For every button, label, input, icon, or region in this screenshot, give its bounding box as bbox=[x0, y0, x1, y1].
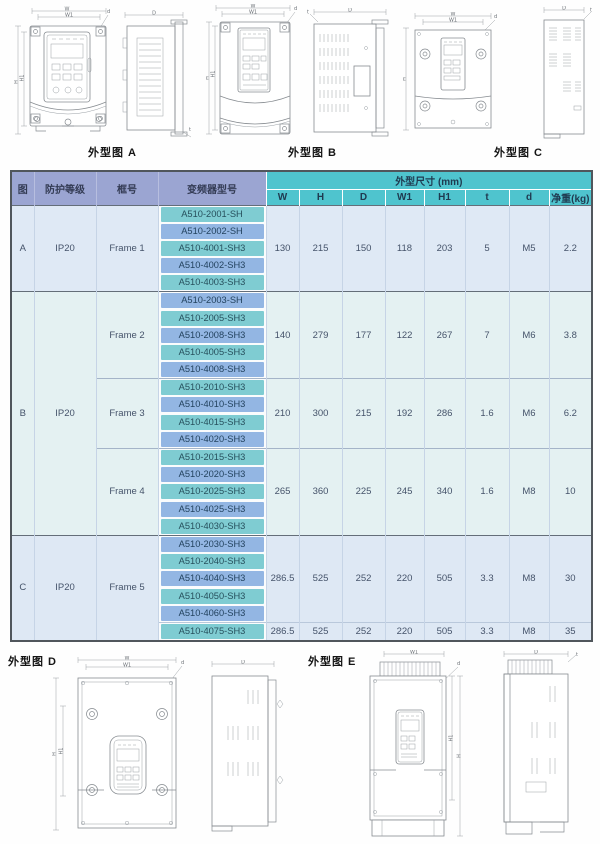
svg-text:H1: H1 bbox=[211, 71, 217, 78]
model-cell: A510-2020-SH3 bbox=[158, 466, 266, 483]
outline-drawing-a-front: W W1 H H1 d bbox=[14, 6, 110, 142]
svg-text:H1: H1 bbox=[449, 735, 455, 742]
svg-text:d: d bbox=[181, 660, 184, 666]
model-cell: A510-4020-SH3 bbox=[158, 431, 266, 449]
dimension-value-cell: 150 bbox=[342, 205, 385, 292]
mounting-plate bbox=[268, 680, 276, 822]
svg-text:d: d bbox=[294, 6, 297, 12]
model-chip: A510-2001-SH bbox=[161, 207, 264, 222]
model-cell: A510-2005-SH3 bbox=[158, 309, 266, 326]
outline-drawing-e-side: D t bbox=[492, 650, 580, 840]
model-cell: A510-4050-SH3 bbox=[158, 587, 266, 604]
heatsink-block bbox=[508, 660, 552, 674]
model-chip: A510-4001-SH3 bbox=[161, 241, 264, 256]
outline-drawing-e-front: W1 d H1 H bbox=[356, 650, 472, 840]
dimension-value-cell: 210 bbox=[266, 379, 299, 449]
outline-drawing-b-front: W W1 H H1 d bbox=[206, 4, 298, 140]
figure-cell: C bbox=[11, 535, 34, 640]
svg-text:D: D bbox=[348, 8, 352, 14]
model-chip: A510-2020-SH3 bbox=[161, 467, 264, 482]
col-header-weight: 净重(kg) bbox=[549, 189, 592, 205]
outline-drawing-d-side: D bbox=[202, 660, 286, 834]
dimension-value-cell: 265 bbox=[266, 448, 299, 535]
svg-text:d: d bbox=[107, 9, 110, 15]
model-chip: A510-2015-SH3 bbox=[161, 450, 264, 465]
svg-text:H: H bbox=[403, 77, 408, 81]
figure-label-a: 外型图 A bbox=[88, 144, 137, 160]
device-body bbox=[127, 26, 175, 130]
dimension-value-cell: 7 bbox=[465, 292, 509, 379]
frame-cell: Frame 4 bbox=[96, 448, 158, 535]
dimension-value-cell: 525 bbox=[299, 535, 342, 622]
dimension-value-cell: M8 bbox=[509, 622, 549, 641]
model-cell: A510-2001-SH bbox=[158, 205, 266, 223]
model-chip: A510-2040-SH3 bbox=[161, 554, 264, 569]
svg-text:t: t bbox=[307, 10, 309, 16]
dimension-value-cell: 140 bbox=[266, 292, 299, 379]
model-cell: A510-4025-SH3 bbox=[158, 500, 266, 517]
heatsink-block bbox=[380, 662, 440, 676]
figure-label-d: 外型图 D bbox=[8, 653, 57, 669]
svg-text:H1: H1 bbox=[59, 748, 65, 755]
model-chip: A510-4025-SH3 bbox=[161, 502, 264, 517]
protection-cell: IP20 bbox=[34, 205, 96, 292]
model-cell: A510-2040-SH3 bbox=[158, 553, 266, 570]
dimension-value-cell: 5 bbox=[465, 205, 509, 292]
model-cell: A510-4040-SH3 bbox=[158, 570, 266, 587]
model-cell: A510-4030-SH3 bbox=[158, 518, 266, 536]
heatsink-fins bbox=[384, 662, 436, 676]
dimension-value-cell: 300 bbox=[299, 379, 342, 449]
frame-cell: Frame 2 bbox=[96, 292, 158, 379]
outline-drawing-b-side: D t bbox=[306, 8, 398, 140]
protection-cell: IP20 bbox=[34, 292, 96, 535]
svg-text:H: H bbox=[52, 752, 58, 756]
dimension-value-cell: 1.6 bbox=[465, 379, 509, 449]
model-cell: A510-4008-SH3 bbox=[158, 361, 266, 379]
dimension-value-cell: 130 bbox=[266, 205, 299, 292]
device-body bbox=[504, 674, 568, 822]
model-chip: A510-2008-SH3 bbox=[161, 328, 264, 343]
feet bbox=[506, 822, 564, 834]
dimension-value-cell: 6.2 bbox=[549, 379, 592, 449]
terminal-cover bbox=[372, 820, 444, 836]
col-header-h: H bbox=[299, 189, 342, 205]
col-header-figure: 图 bbox=[11, 171, 34, 205]
table-row: Frame 4A510-2015-SH32653602252453401.6M8… bbox=[11, 448, 592, 466]
svg-text:W1: W1 bbox=[449, 18, 457, 24]
model-cell: A510-2002-SH bbox=[158, 223, 266, 240]
front-latches bbox=[123, 38, 127, 112]
model-chip: A510-4020-SH3 bbox=[161, 432, 264, 447]
latch-diamonds bbox=[277, 700, 283, 784]
figure-cell: A bbox=[11, 205, 34, 292]
model-cell: A510-4003-SH3 bbox=[158, 274, 266, 292]
col-header-d: D bbox=[342, 189, 385, 205]
dimension-value-cell: 3.3 bbox=[465, 535, 509, 622]
table-row: AIP20Frame 1A510-2001-SH1302151501182035… bbox=[11, 205, 592, 223]
svg-text:t: t bbox=[576, 652, 578, 658]
model-chip: A510-4040-SH3 bbox=[161, 571, 264, 586]
model-chip: A510-2010-SH3 bbox=[161, 380, 264, 395]
svg-text:D: D bbox=[152, 11, 156, 17]
svg-text:D: D bbox=[562, 6, 566, 12]
dimension-value-cell: 2.2 bbox=[549, 205, 592, 292]
dimension-value-cell: 360 bbox=[299, 448, 342, 535]
dimension-value-cell: 286.5 bbox=[266, 535, 299, 622]
figure-label-e: 外型图 E bbox=[308, 653, 356, 669]
dimension-value-cell: 279 bbox=[299, 292, 342, 379]
model-cell: A510-4010-SH3 bbox=[158, 396, 266, 413]
dimension-value-cell: 505 bbox=[424, 535, 465, 622]
col-header-t: t bbox=[465, 189, 509, 205]
model-chip: A510-4030-SH3 bbox=[161, 519, 264, 534]
frame-cell: Frame 1 bbox=[96, 205, 158, 292]
dimension-value-cell: M8 bbox=[509, 448, 549, 535]
spec-table-body: AIP20Frame 1A510-2001-SH1302151501182035… bbox=[11, 205, 592, 641]
model-chip: A510-4002-SH3 bbox=[161, 258, 264, 273]
model-cell: A510-2030-SH3 bbox=[158, 535, 266, 553]
svg-text:W1: W1 bbox=[123, 663, 131, 669]
dimension-value-cell: 10 bbox=[549, 448, 592, 535]
outline-drawing-d-front: W W1 H H1 d bbox=[52, 656, 188, 836]
frame-cell: Frame 3 bbox=[96, 379, 158, 449]
model-chip: A510-4050-SH3 bbox=[161, 589, 264, 604]
dimension-value-cell: 505 bbox=[424, 622, 465, 641]
svg-text:t: t bbox=[189, 127, 191, 133]
dimension-value-cell: 252 bbox=[342, 535, 385, 622]
keypad bbox=[396, 710, 424, 764]
model-cell: A510-4060-SH3 bbox=[158, 605, 266, 623]
model-chip: A510-2030-SH3 bbox=[161, 537, 264, 552]
label-plate bbox=[354, 66, 370, 96]
dimension-value-cell: 225 bbox=[342, 448, 385, 535]
outline-drawing-c-side: D t bbox=[536, 6, 594, 142]
model-chip: A510-4075-SH3 bbox=[161, 624, 264, 639]
svg-text:H: H bbox=[457, 754, 463, 758]
svg-text:d: d bbox=[457, 661, 460, 667]
dimension-value-cell: 215 bbox=[299, 205, 342, 292]
svg-text:W1: W1 bbox=[249, 10, 257, 16]
model-chip: A510-4010-SH3 bbox=[161, 397, 264, 412]
dimension-value-cell: 122 bbox=[385, 292, 424, 379]
model-chip: A510-2005-SH3 bbox=[161, 311, 264, 326]
dimension-value-cell: 3.3 bbox=[465, 622, 509, 641]
dimension-value-cell: 35 bbox=[549, 622, 592, 641]
dimension-spec-table: 图 防护等级 框号 变频器型号 外型尺寸 (mm) W H D W1 H1 t … bbox=[10, 170, 593, 642]
dimension-value-cell: M6 bbox=[509, 379, 549, 449]
keypad bbox=[238, 28, 270, 92]
col-header-frame: 框号 bbox=[96, 171, 158, 205]
dimension-value-cell: 220 bbox=[385, 622, 424, 641]
dimension-lines: D bbox=[212, 660, 274, 667]
table-row: Frame 3A510-2010-SH32103002151922861.6M6… bbox=[11, 379, 592, 397]
model-cell: A510-2010-SH3 bbox=[158, 379, 266, 397]
model-cell: A510-4002-SH3 bbox=[158, 257, 266, 274]
model-cell: A510-2025-SH3 bbox=[158, 483, 266, 500]
heatsink-fins bbox=[512, 660, 548, 674]
dimension-value-cell: 286 bbox=[424, 379, 465, 449]
model-cell: A510-2003-SH bbox=[158, 292, 266, 310]
model-cell: A510-2015-SH3 bbox=[158, 448, 266, 466]
svg-text:t: t bbox=[590, 8, 592, 14]
model-cell: A510-4075-SH3 bbox=[158, 622, 266, 641]
dimension-value-cell: 1.6 bbox=[465, 448, 509, 535]
model-chip: A510-4060-SH3 bbox=[161, 606, 264, 621]
dimension-value-cell: 118 bbox=[385, 205, 424, 292]
dimension-value-cell: M5 bbox=[509, 205, 549, 292]
frame-cell: Frame 5 bbox=[96, 535, 158, 640]
table-row: BIP20Frame 2A510-2003-SH1402791771222677… bbox=[11, 292, 592, 310]
outline-drawing-a-side: D t bbox=[113, 10, 195, 140]
svg-text:W1: W1 bbox=[410, 650, 418, 656]
model-cell: A510-4015-SH3 bbox=[158, 414, 266, 431]
model-chip: A510-2003-SH bbox=[161, 293, 264, 308]
keypad bbox=[110, 736, 146, 794]
dimension-value-cell: M6 bbox=[509, 292, 549, 379]
figure-label-c: 外型图 C bbox=[494, 144, 543, 160]
dimension-value-cell: 286.5 bbox=[266, 622, 299, 641]
dimension-value-cell: 525 bbox=[299, 622, 342, 641]
col-header-model: 变频器型号 bbox=[158, 171, 266, 205]
table-row: CIP20Frame 5A510-2030-SH3286.55252522205… bbox=[11, 535, 592, 553]
keypad bbox=[441, 38, 465, 90]
outline-drawing-c-front: W W1 H d bbox=[403, 12, 499, 136]
svg-text:H1: H1 bbox=[20, 75, 26, 82]
model-cell: A510-4005-SH3 bbox=[158, 344, 266, 361]
col-header-w: W bbox=[266, 189, 299, 205]
model-chip: A510-2002-SH bbox=[161, 224, 264, 239]
col-header-dimensions-group: 外型尺寸 (mm) bbox=[266, 171, 592, 189]
model-chip: A510-4008-SH3 bbox=[161, 362, 264, 377]
model-chip: A510-4005-SH3 bbox=[161, 345, 264, 360]
figure-cell: B bbox=[11, 292, 34, 535]
model-chip: A510-2025-SH3 bbox=[161, 484, 264, 499]
svg-text:D: D bbox=[241, 660, 245, 666]
dimension-value-cell: 220 bbox=[385, 535, 424, 622]
svg-text:W1: W1 bbox=[65, 13, 73, 19]
dimension-value-cell: 215 bbox=[342, 379, 385, 449]
col-header-protection: 防护等级 bbox=[34, 171, 96, 205]
protection-cell: IP20 bbox=[34, 535, 96, 640]
dimension-value-cell: 203 bbox=[424, 205, 465, 292]
dimension-value-cell: 245 bbox=[385, 448, 424, 535]
catalog-page: { "figures": { "a": "外型图 A", "b": "外型图 B… bbox=[0, 0, 600, 844]
svg-text:D: D bbox=[534, 650, 538, 656]
foot bbox=[544, 134, 560, 138]
dimension-value-cell: 340 bbox=[424, 448, 465, 535]
figure-label-b: 外型图 B bbox=[288, 144, 337, 160]
dimension-value-cell: M8 bbox=[509, 535, 549, 622]
model-chip: A510-4015-SH3 bbox=[161, 415, 264, 430]
keypad bbox=[44, 32, 91, 102]
model-chip: A510-4003-SH3 bbox=[161, 275, 264, 290]
device-body bbox=[212, 676, 268, 826]
col-header-h1: H1 bbox=[424, 189, 465, 205]
dimension-value-cell: 192 bbox=[385, 379, 424, 449]
svg-text:d: d bbox=[494, 14, 497, 20]
model-cell: A510-4001-SH3 bbox=[158, 240, 266, 257]
dimension-value-cell: 267 bbox=[424, 292, 465, 379]
dimension-value-cell: 30 bbox=[549, 535, 592, 622]
foot bbox=[212, 826, 232, 831]
dimension-lines: D t bbox=[544, 6, 592, 19]
dimension-value-cell: 252 bbox=[342, 622, 385, 641]
svg-text:W: W bbox=[125, 656, 130, 662]
dimension-value-cell: 3.8 bbox=[549, 292, 592, 379]
dimension-value-cell: 177 bbox=[342, 292, 385, 379]
model-cell: A510-2008-SH3 bbox=[158, 327, 266, 344]
col-header-w1: W1 bbox=[385, 189, 424, 205]
col-header-hole-d: d bbox=[509, 189, 549, 205]
